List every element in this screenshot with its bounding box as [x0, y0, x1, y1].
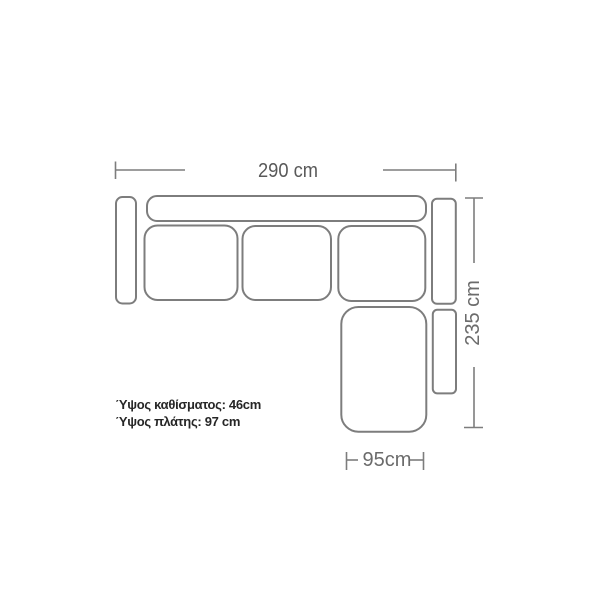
- svg-text:Ύψος πλάτης: 97 cm: Ύψος πλάτης: 97 cm: [116, 414, 241, 429]
- svg-text:Ύψος καθίσματος: 46cm: Ύψος καθίσματος: 46cm: [116, 397, 261, 412]
- svg-text:290 cm: 290 cm: [258, 160, 318, 182]
- svg-text:95cm: 95cm: [363, 449, 412, 471]
- svg-text:235 cm: 235 cm: [462, 280, 484, 346]
